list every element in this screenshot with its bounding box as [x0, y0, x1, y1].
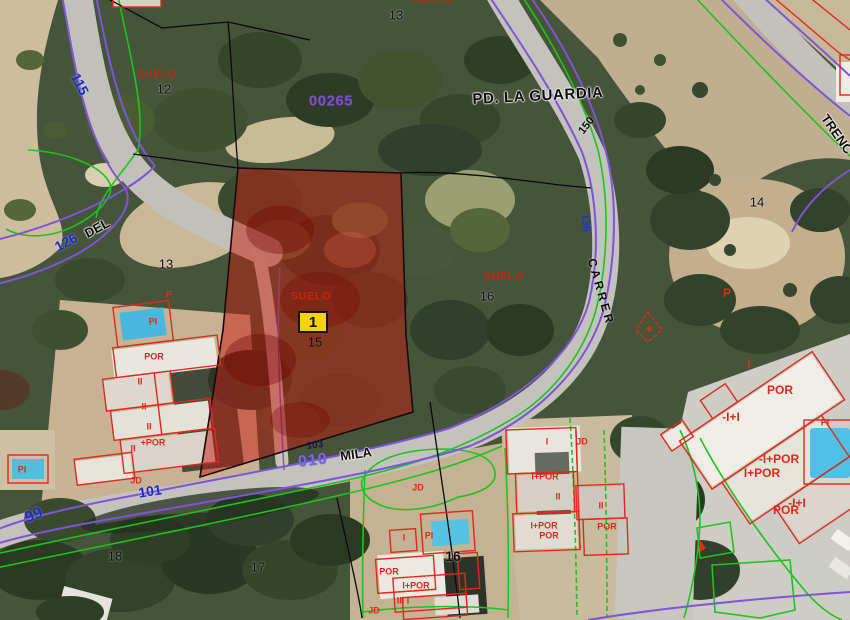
label-road-010: 010 — [297, 451, 328, 471]
cadastral-map-viewport: 1 115126DEL9910113615000265010103PD. LA … — [0, 0, 850, 620]
label-road-126: 126 — [52, 230, 79, 253]
label-suelo-selected: SUELO — [291, 292, 331, 303]
label-bldg-por-r1: POR — [767, 384, 793, 396]
label-parcel-18: 18 — [108, 550, 122, 563]
label-road-150: 150 — [577, 115, 597, 136]
label-bldg-ipor-r1: -I+POR — [759, 453, 799, 465]
label-parcel-13-top: 13 — [389, 9, 403, 22]
label-bldg-ii-c2b: II — [598, 502, 603, 511]
selected-parcel-marker[interactable]: 1 — [298, 311, 328, 333]
label-suelo-top: SUELO — [414, 0, 454, 6]
label-street-del: DEL — [82, 216, 111, 240]
label-parcel-14: 14 — [750, 196, 764, 209]
label-bldg-p-right: P — [723, 287, 731, 299]
label-road-103: 103 — [306, 440, 324, 452]
label-parcel-17: 17 — [251, 561, 265, 574]
label-bldg-ipor-r2: I+POR — [744, 467, 780, 479]
label-bldg-por-left: POR — [144, 353, 164, 362]
label-bldg-jd-left: JD — [130, 477, 142, 486]
label-parcel-13: 13 — [159, 258, 173, 271]
label-parcel-15: 15 — [308, 336, 322, 349]
label-street-trenc: TRENC — [819, 112, 850, 156]
label-bldg-jd-c1: JD — [368, 607, 380, 616]
label-street-mila: MILA — [339, 445, 372, 462]
label-bldg-ii-2: II — [141, 403, 146, 412]
label-suelo-16: SUELO — [484, 272, 524, 283]
label-bldg-ipor-c2a: I+POR — [531, 473, 558, 482]
label-bldg-por-c2b: POR — [597, 523, 617, 532]
label-bldg-ii-1: II — [137, 378, 142, 387]
label-bldg-pi-left: PI — [149, 318, 158, 327]
label-bldg-i-right: I — [747, 358, 750, 370]
label-bldg-p-left: P — [166, 291, 172, 300]
label-bldg-ii-3: II — [146, 423, 151, 432]
label-bldg-pi-sw: PI — [18, 466, 27, 475]
label-bldg-por-c1: POR — [379, 568, 399, 577]
label-bldg-plus-por: +POR — [141, 439, 166, 448]
label-bldg-i-c1: I — [403, 534, 406, 543]
label-place-pd-la-guardia: PD. LA GUARDIA — [472, 85, 604, 107]
label-bldg-iiii-c1: III I — [397, 597, 410, 606]
label-bldg-ii-c2a: II — [555, 493, 560, 502]
label-bldg-por-c2a: POR — [539, 532, 559, 541]
label-parcel-12: 12 — [157, 83, 171, 96]
label-bldg-pi-right: PI — [821, 419, 830, 428]
label-parcel-16: 16 — [480, 290, 494, 303]
label-bldg-jd-center: JD — [412, 484, 424, 493]
label-bldg-i-c2: I — [546, 438, 549, 447]
label-bldg-ii-4: II — [130, 445, 135, 454]
label-parcel-16b: 16 — [445, 549, 461, 563]
label-suelo-12: SUELO — [137, 70, 177, 81]
label-bldg-ipor-c2b: I+POR — [530, 522, 557, 531]
label-bldg-ipor-c1: I+POR — [402, 582, 429, 591]
label-layer: 1 115126DEL9910113615000265010103PD. LA … — [0, 0, 850, 620]
label-road-115: 115 — [69, 71, 92, 97]
label-bldg-por-r2: POR — [773, 504, 799, 516]
label-bldg-ii-r1: -I+I — [722, 411, 740, 423]
label-street-carrer: CARRER — [586, 257, 617, 327]
label-bldg-pi-c1: PI — [425, 532, 434, 541]
label-zone-00265: 00265 — [309, 94, 353, 109]
label-bldg-jd-c2: JD — [576, 438, 588, 447]
label-road-136: 136 — [578, 213, 591, 233]
label-road-99: 99 — [23, 505, 46, 527]
